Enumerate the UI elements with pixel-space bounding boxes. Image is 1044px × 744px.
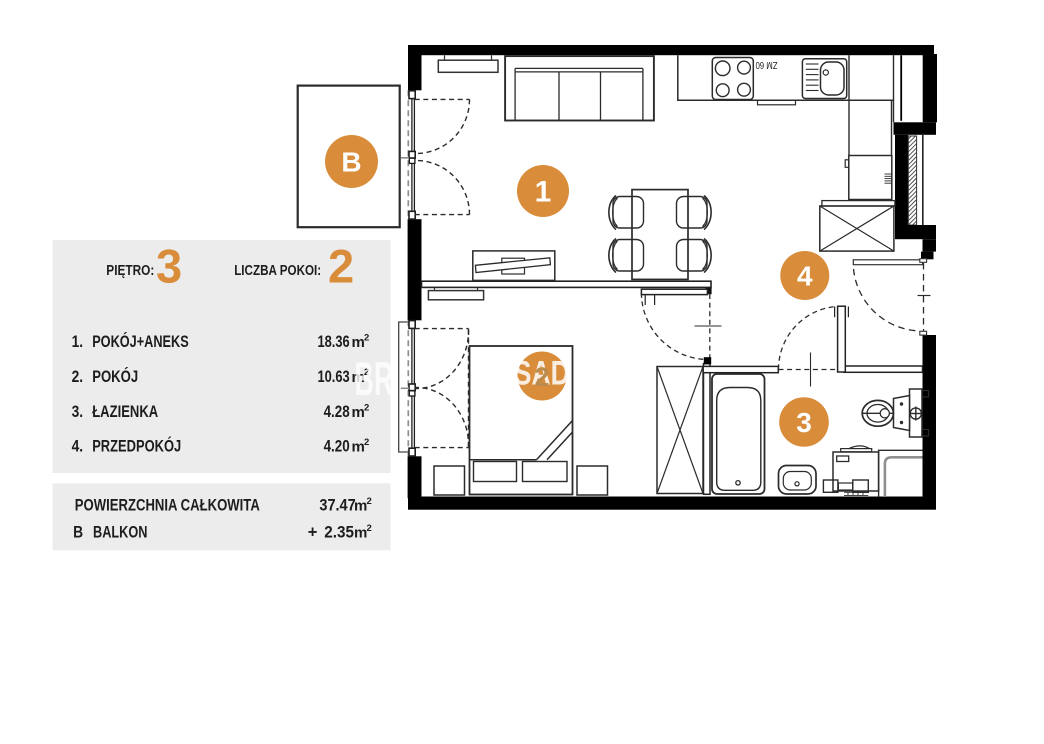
svg-text:4.28: 4.28 bbox=[324, 403, 350, 421]
svg-text:B: B bbox=[341, 147, 361, 178]
svg-text:PIĘTRO:: PIĘTRO: bbox=[106, 263, 154, 279]
svg-text:2: 2 bbox=[534, 362, 549, 392]
svg-text:2: 2 bbox=[328, 240, 354, 293]
svg-text:m: m bbox=[354, 498, 367, 515]
svg-text:B: B bbox=[73, 524, 83, 542]
svg-text:2: 2 bbox=[367, 496, 372, 507]
svg-text:4: 4 bbox=[797, 261, 813, 292]
svg-text:1: 1 bbox=[535, 176, 552, 209]
svg-text:POKÓJ: POKÓJ bbox=[92, 367, 138, 386]
svg-text:2: 2 bbox=[364, 437, 369, 448]
svg-text:2: 2 bbox=[364, 333, 369, 344]
svg-text:3: 3 bbox=[156, 240, 182, 293]
svg-text:1.: 1. bbox=[72, 333, 84, 351]
svg-text:m: m bbox=[352, 334, 365, 351]
svg-text:18.36: 18.36 bbox=[318, 333, 350, 351]
svg-text:LICZBA POKOI:: LICZBA POKOI: bbox=[234, 263, 321, 279]
svg-text:4.: 4. bbox=[72, 438, 84, 456]
svg-text:2.35: 2.35 bbox=[324, 524, 354, 542]
svg-text:PRZEDPOKÓJ: PRZEDPOKÓJ bbox=[92, 437, 181, 456]
svg-text:m: m bbox=[354, 525, 367, 542]
svg-text:BR: BR bbox=[354, 352, 393, 405]
svg-text:10.63: 10.63 bbox=[318, 368, 350, 386]
svg-text:ŁAZIENKA: ŁAZIENKA bbox=[92, 403, 158, 421]
svg-text:POWIERZCHNIA CAŁKOWITA: POWIERZCHNIA CAŁKOWITA bbox=[75, 497, 260, 515]
svg-text:2.: 2. bbox=[72, 368, 84, 386]
svg-text:m: m bbox=[352, 439, 365, 456]
svg-text:4.20: 4.20 bbox=[324, 438, 350, 456]
svg-text:POKÓJ+ANEKS: POKÓJ+ANEKS bbox=[92, 332, 189, 351]
svg-text:3: 3 bbox=[796, 407, 812, 438]
svg-text:ZM 60: ZM 60 bbox=[755, 59, 777, 70]
svg-text:3.: 3. bbox=[72, 403, 84, 421]
svg-text:BALKON: BALKON bbox=[93, 524, 148, 542]
svg-text:m: m bbox=[352, 404, 365, 421]
svg-text:37.47: 37.47 bbox=[319, 497, 355, 515]
svg-text:2: 2 bbox=[367, 523, 372, 534]
svg-text:+: + bbox=[308, 524, 318, 542]
